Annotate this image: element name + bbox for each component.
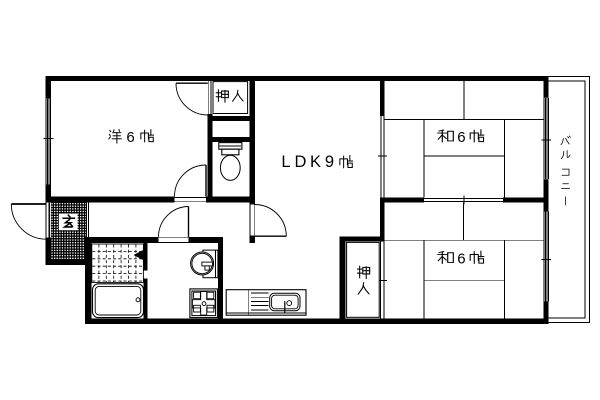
svg-text:K: K: [310, 153, 321, 171]
svg-text:6: 6: [126, 129, 134, 146]
svg-text:D: D: [295, 153, 307, 171]
svg-text:6: 6: [457, 129, 465, 146]
svg-text:L: L: [281, 153, 290, 171]
svg-text:6: 6: [457, 250, 465, 267]
svg-text:9: 9: [325, 153, 334, 171]
